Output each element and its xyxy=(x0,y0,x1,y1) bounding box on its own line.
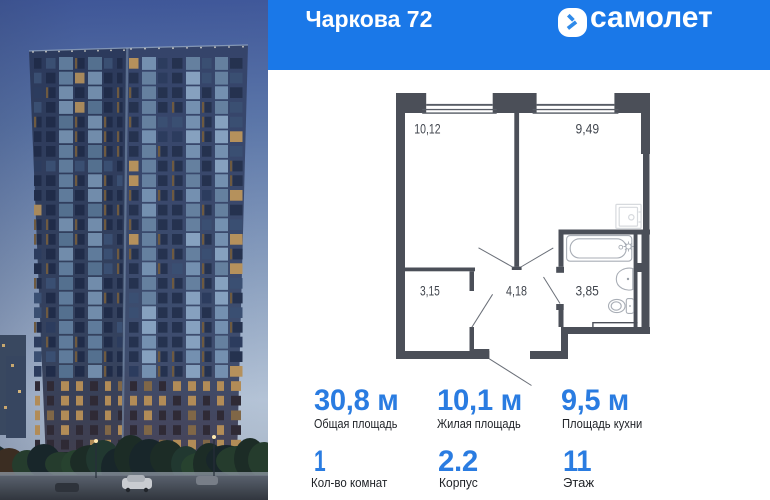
svg-text:3,15: 3,15 xyxy=(420,283,440,299)
svg-text:3,85: 3,85 xyxy=(576,282,599,298)
svg-text:4,18: 4,18 xyxy=(506,283,527,299)
svg-text:10,12: 10,12 xyxy=(414,121,440,137)
svg-text:9,49: 9,49 xyxy=(576,121,600,137)
